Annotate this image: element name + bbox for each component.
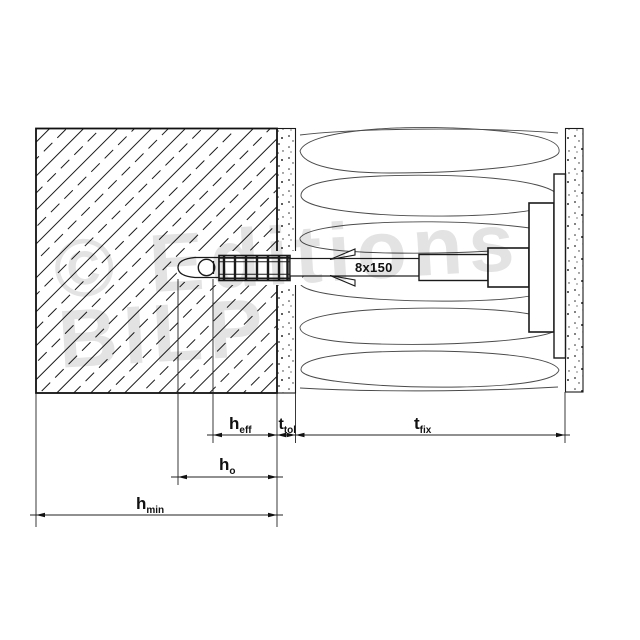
- new-render-layer: [566, 129, 584, 393]
- dim-label-ho: ho: [219, 455, 236, 477]
- anti-rotation-barb-bottom: [330, 276, 355, 287]
- insulation-wave: [301, 175, 559, 216]
- screw-head: [198, 259, 214, 275]
- dim-label-hmin: hmin: [136, 494, 164, 516]
- washer: [529, 203, 554, 332]
- anchor-size-label: 8x150: [355, 260, 393, 275]
- washer-plate-assembly: [529, 174, 566, 358]
- dim-arrows: [36, 433, 565, 518]
- backing-plate: [554, 174, 566, 358]
- anchor-collar: [419, 255, 488, 281]
- dim-label-heff: heff: [229, 414, 252, 436]
- insulation-wave: [300, 387, 558, 391]
- new-render-stipple: [566, 129, 584, 393]
- insulation-wave: [300, 127, 559, 173]
- dim-label-ttol: ttol: [279, 416, 297, 436]
- insulation-wave: [300, 129, 558, 135]
- anchor-installation-diagram: 8x150 hef: [0, 0, 640, 640]
- insulation-wave: [300, 308, 558, 344]
- anchor-head: [488, 248, 529, 287]
- insulation-wave: [301, 351, 559, 387]
- dim-label-tfix: tfix: [414, 414, 432, 436]
- screenshot-root: 8x150 hef: [0, 0, 640, 640]
